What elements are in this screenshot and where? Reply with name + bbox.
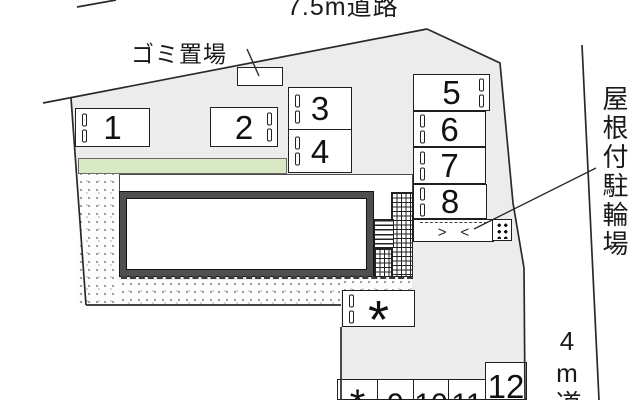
wheel-stop-icons [295,137,300,166]
wheel-stop-icons [295,94,300,123]
space-number: 10 [414,390,447,400]
building-outline [120,192,373,276]
parking-space-4: 4 [288,129,352,173]
gravel-strip-left [77,170,119,305]
space-number: 11 [451,390,482,400]
wheel-stop-icons [349,294,354,323]
garbage-area-label: ゴミ置場 [131,35,227,69]
arrow-right-icon: > [438,225,447,240]
wheel-stop-icons [82,113,87,142]
space-number: 3 [311,92,329,125]
site-plan-canvas: 1 2 3 4 5 6 7 8 * * 9 10 11 [0,0,640,400]
parking-space-10: 10 [413,379,449,400]
space-number: 12 [488,370,525,400]
parking-space-star: * [342,290,415,327]
covered-bicycle-parking-label: 屋根付駐輪場 [596,85,633,259]
gravel-strip-right [341,278,412,290]
stairs-icon [374,219,394,248]
wheel-stop-icons [420,151,425,180]
bicycle-parking-area: > < [413,219,494,242]
parking-space-9: 9 [377,379,414,400]
planting-strip [78,158,287,174]
gravel-strip-bottom [119,280,341,305]
space-number: 9 [387,390,404,400]
wheel-stop-icons [267,113,272,142]
wheel-stop-icons [420,115,425,144]
parking-space-1: 1 [75,108,150,147]
hatched-walkway [391,192,413,277]
road-top-label: 7.5m道路 [287,0,399,23]
building-dashed-edge [121,276,413,279]
space-number: 5 [442,76,460,109]
arrow-left-icon: < [461,225,470,240]
space-number: 8 [441,185,459,218]
parking-space-11: 11 [448,379,486,400]
road-edge-segment [77,0,116,7]
parking-space-2: 2 [210,107,278,147]
garbage-area-box [237,67,283,86]
space-number: 4 [311,135,329,168]
parking-space-12: 12 [485,362,527,400]
space-number: 7 [440,149,458,182]
parking-space-6: 6 [413,111,486,147]
parking-space-3: 3 [288,87,352,130]
dashed-mark [420,222,487,223]
north-boundary-line [43,29,427,103]
bike-rack-icon [492,219,512,241]
parking-space-7: 7 [413,147,486,184]
rack-dots-icon [496,221,509,239]
parking-space-5: 5 [413,74,490,111]
space-number: * [368,293,389,347]
space-number: 2 [235,111,253,144]
parking-space-star-2: * [337,379,378,400]
space-number: 6 [440,113,458,146]
space-number: 1 [103,111,121,144]
road-right-label: 4m道 [549,326,586,400]
wheel-stop-icons [420,187,425,216]
wheel-stop-icons [479,78,484,107]
hatched-walkway-lower [374,248,392,277]
space-number: * [350,384,366,400]
parking-space-8: 8 [413,184,487,219]
